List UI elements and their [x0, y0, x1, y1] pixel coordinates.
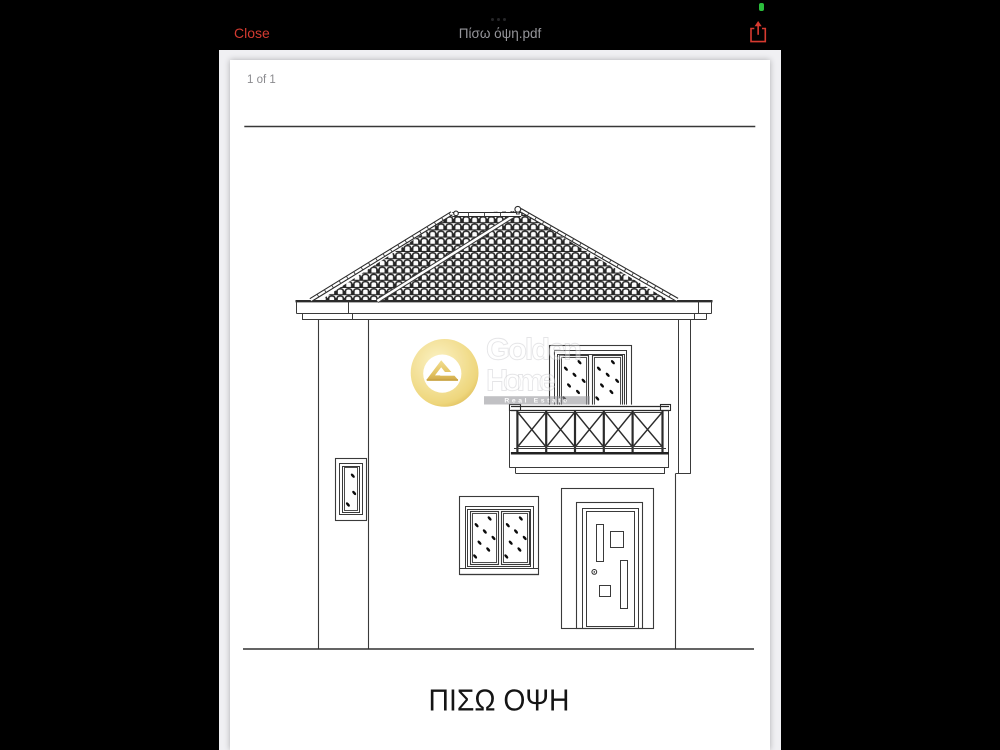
svg-text:1 of 1: 1 of 1: [247, 74, 276, 86]
svg-text:ΠΙΣΩ ΟΨΗ: ΠΙΣΩ ΟΨΗ: [429, 684, 570, 718]
svg-text:Home: Home: [486, 363, 556, 398]
svg-text:Golden: Golden: [486, 332, 582, 367]
svg-text:Real Estate: Real Estate: [504, 398, 569, 405]
